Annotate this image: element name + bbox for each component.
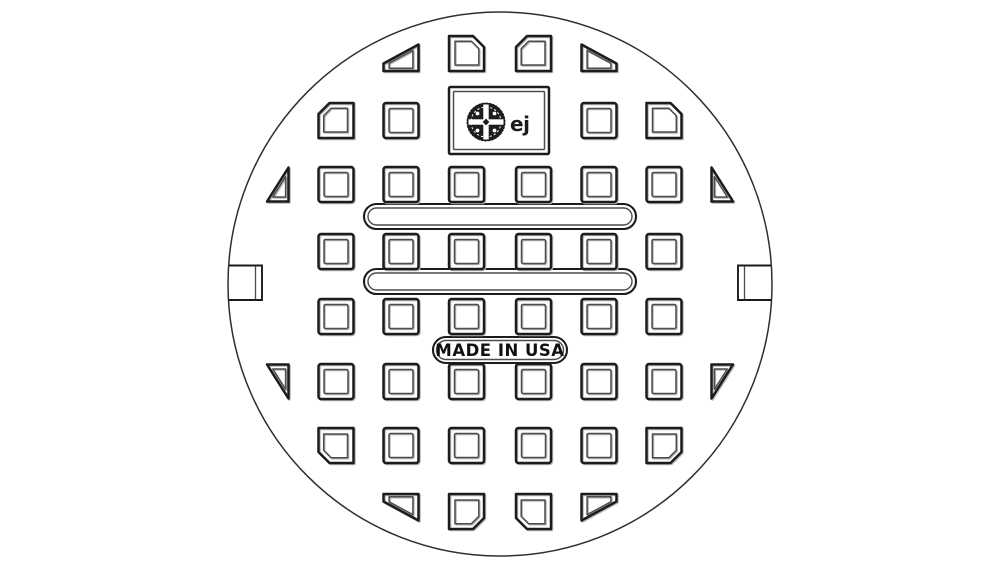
vent-recess: [582, 364, 617, 399]
vent-recess: [582, 167, 617, 202]
vent-recess: [582, 45, 617, 72]
manhole-cover-drawing: ej MADE IN USA: [0, 0, 1000, 567]
vent-recess: [712, 168, 734, 202]
vent-recess: [384, 234, 419, 269]
vent-recess: [647, 103, 682, 138]
vent-recess: [319, 167, 354, 202]
pry-notch-right: [738, 266, 771, 301]
globe-icon: [467, 103, 506, 142]
foundry-logo-text: ej: [510, 112, 529, 136]
vent-recess: [516, 167, 551, 202]
vent-recess: [516, 234, 551, 269]
vent-recess: [582, 103, 617, 138]
vent-recess: [384, 167, 419, 202]
lift-slot-top: [364, 204, 636, 229]
vent-recess: [516, 428, 551, 463]
vent-recess: [319, 428, 354, 463]
vent-recess: [384, 103, 419, 138]
drawing-page: ej MADE IN USA: [0, 0, 1000, 567]
vent-recess: [449, 167, 484, 202]
vent-recess: [647, 364, 682, 399]
vent-recess: [384, 428, 419, 463]
vent-recess: [384, 299, 419, 334]
vent-recess: [449, 364, 484, 399]
vent-recess: [267, 168, 289, 202]
vent-recess: [319, 299, 354, 334]
lift-slot-bottom: [364, 269, 636, 294]
vent-recess: [647, 428, 682, 463]
vent-recess: [449, 494, 484, 529]
vent-recess: [319, 364, 354, 399]
vent-recess: [582, 494, 617, 521]
vent-recess: [516, 299, 551, 334]
made-in-usa-text: MADE IN USA: [435, 341, 564, 360]
vent-recess: [449, 428, 484, 463]
vent-recess: [582, 428, 617, 463]
vent-recess: [384, 364, 419, 399]
vent-recess: [647, 299, 682, 334]
vent-recess: [516, 364, 551, 399]
vent-recess: [449, 234, 484, 269]
vent-recess: [647, 167, 682, 202]
vent-recess: [319, 234, 354, 269]
vent-recess: [712, 365, 734, 399]
vent-recess: [647, 234, 682, 269]
pry-notch-left: [229, 266, 262, 301]
cover-rim: [228, 12, 772, 556]
vent-recess: [582, 234, 617, 269]
vent-recess: [384, 494, 419, 521]
vent-recess: [516, 494, 551, 529]
vent-recess: [449, 299, 484, 334]
vent-recess: [582, 299, 617, 334]
vent-recess: [319, 103, 354, 138]
vent-recess: [267, 365, 289, 399]
vent-recess: [449, 36, 484, 71]
made-in-usa-stamp: MADE IN USA: [433, 337, 567, 363]
vent-recess: [384, 45, 419, 72]
vent-recess: [516, 36, 551, 71]
